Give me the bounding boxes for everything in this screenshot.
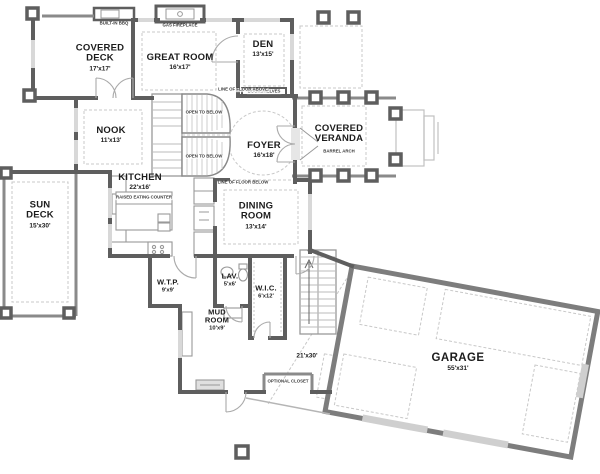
annotation-optional-closet: OPTIONAL CLOSET bbox=[267, 380, 309, 384]
annotation-open-to-below-1: OPEN TO BELOW bbox=[185, 111, 223, 115]
room-dims: 9'x9' bbox=[146, 287, 190, 293]
room-name: GREAT ROOM bbox=[135, 53, 225, 63]
room-name: SUN DECK bbox=[20, 201, 60, 222]
room-dims: 11'x13' bbox=[81, 137, 141, 144]
room-name: KITCHEN bbox=[100, 173, 180, 183]
annotation-barrel-arch: BARREL ARCH bbox=[323, 150, 356, 154]
room-name: NOOK bbox=[81, 126, 141, 136]
room-label-garage: GARAGE 55'x31' bbox=[413, 352, 503, 372]
room-name: LAV. bbox=[215, 272, 245, 280]
room-dims: 16'x18' bbox=[234, 152, 294, 159]
annotation-line-of-floor-below: LINE OF FLOOR BELOW bbox=[217, 181, 269, 185]
room-label-covered-veranda: COVERED VERANDA bbox=[310, 124, 368, 145]
room-dims: 13'x15' bbox=[233, 51, 293, 58]
wall-ovens bbox=[194, 206, 214, 230]
annotation-hall-dims: 21'x30' bbox=[295, 353, 318, 360]
room-name: MUD ROOM bbox=[198, 308, 236, 324]
room-dims: 16'x17' bbox=[135, 64, 225, 71]
room-name: DINING ROOM bbox=[233, 202, 279, 223]
toilet-tank bbox=[239, 264, 247, 269]
room-name: COVERED DECK bbox=[65, 44, 135, 65]
room-dims: 6'x12' bbox=[249, 293, 283, 299]
annotation-open-to-below-2: OPEN TO BELOW bbox=[185, 155, 223, 159]
room-label-kitchen: KITCHEN 22'x16' bbox=[100, 173, 180, 191]
site-lines bbox=[246, 398, 330, 414]
room-dims: 10'x9' bbox=[198, 325, 236, 331]
room-label-foyer: FOYER 16'x18' bbox=[234, 141, 294, 159]
annotation-line-of-floor-above: LINE OF FLOOR ABOVE bbox=[217, 88, 268, 92]
room-name: GARAGE bbox=[413, 352, 503, 364]
room-dims: 55'x31' bbox=[413, 365, 503, 372]
room-label-wic: W.I.C. 6'x12' bbox=[249, 284, 283, 299]
room-name: COVERED VERANDA bbox=[310, 124, 368, 145]
room-name: DEN bbox=[233, 40, 293, 50]
room-dims: 5'x6' bbox=[215, 281, 245, 287]
stairs-main bbox=[152, 94, 232, 176]
annotation-gas-fireplace: GAS FIREPLACE bbox=[162, 24, 198, 28]
mud-bench bbox=[182, 312, 192, 356]
floor-plan-canvas: COVERED DECK 17'x17' GREAT ROOM 16'x17' … bbox=[0, 0, 600, 474]
annotation-raised-eating-counter: RAISED EATING COUNTER bbox=[115, 196, 173, 200]
room-name: W.T.P. bbox=[146, 278, 190, 286]
room-label-wtp: W.T.P. 9'x9' bbox=[146, 278, 190, 293]
fireplace bbox=[156, 6, 204, 22]
annotation-built-in-bbq: BUILT-IN BBQ bbox=[99, 22, 129, 26]
room-label-den: DEN 13'x15' bbox=[233, 40, 293, 58]
room-dims: 17'x17' bbox=[65, 65, 135, 72]
stairs-lower bbox=[300, 250, 336, 334]
room-name: W.I.C. bbox=[249, 284, 283, 292]
room-label-mud-room: MUD ROOM 10'x9' bbox=[198, 308, 236, 331]
room-name: FOYER bbox=[234, 141, 294, 151]
range bbox=[148, 242, 172, 256]
room-dims: 15'x30' bbox=[20, 222, 60, 229]
room-label-dining-room: DINING ROOM 13'x14' bbox=[233, 202, 279, 231]
pantry-cabinet bbox=[194, 232, 214, 256]
room-dims: 13'x14' bbox=[233, 223, 279, 230]
room-label-nook: NOOK 11'x13' bbox=[81, 126, 141, 144]
bbq bbox=[94, 8, 134, 20]
room-label-great-room: GREAT ROOM 16'x17' bbox=[135, 53, 225, 71]
room-label-covered-deck: COVERED DECK 17'x17' bbox=[65, 44, 135, 73]
room-dims: 22'x16' bbox=[100, 184, 180, 191]
room-label-lav: LAV. 5'x6' bbox=[215, 272, 245, 287]
room-label-sun-deck: SUN DECK 15'x30' bbox=[20, 201, 60, 230]
